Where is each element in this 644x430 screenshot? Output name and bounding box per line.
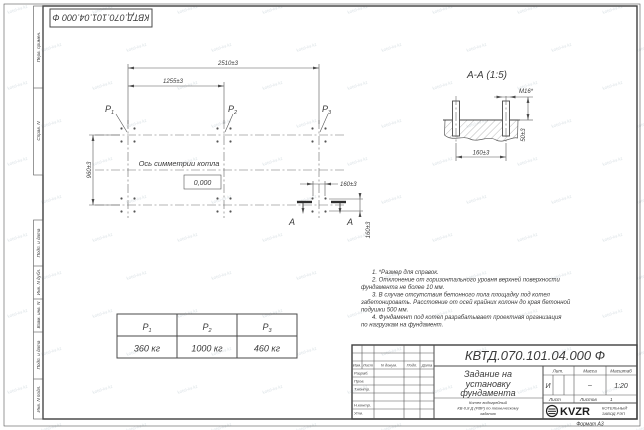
watermark-text: kotel-kv.kz (296, 41, 318, 52)
sheet-label: Лист (548, 397, 561, 402)
cut-letter-right: А (346, 217, 353, 227)
margin-label-podp-data-1: Подп. и дата (36, 228, 41, 257)
watermark-text: kotel-kv.kz (211, 41, 233, 52)
watermark-text: kotel-kv.kz (7, 155, 29, 166)
watermark-text: kotel-kv.kz (177, 231, 199, 242)
watermark-text: kotel-kv.kz (262, 231, 284, 242)
watermark-text: kotel-kv.kz (211, 117, 233, 128)
watermark-text: kotel-kv.kz (92, 383, 114, 394)
dim-bolt-y-text: 160±3 (366, 221, 372, 238)
watermark-text: kotel-kv.kz (262, 383, 284, 394)
watermark-text: kotel-kv.kz (381, 117, 403, 128)
note-line-2: 2. Отклонение от горизонтального уровня … (371, 277, 561, 284)
title-block-left-labels: Изм. Лист N докум. Подп. Дата Разраб. Пр… (353, 363, 433, 416)
note-line-5: забетонировать. Расстояние от осей крайн… (360, 299, 571, 306)
watermark-text: kotel-kv.kz (296, 345, 318, 356)
watermark-text: kotel-kv.kz (41, 193, 63, 204)
watermark-text: kotel-kv.kz (7, 79, 29, 90)
watermark-text: kotel-kv.kz (92, 231, 114, 242)
load-table-header-2: Р2 (202, 322, 211, 334)
watermark-text: kotel-kv.kz (41, 117, 63, 128)
note-line-7: 4. Фундамент под котел разрабатывает про… (372, 315, 562, 321)
watermark-text: kotel-kv.kz (211, 269, 233, 280)
cut-letter-left: А (288, 217, 295, 227)
company-name-line2: ЗАВОД РЭП (602, 411, 625, 416)
watermark-text: kotel-kv.kz (432, 79, 454, 90)
watermark-text: kotel-kv.kz (7, 383, 29, 394)
margin-label-perv-primen: Перв. примен. (36, 32, 41, 63)
note-line-6: подушки 500 мм. (361, 308, 408, 314)
svg-text:Задание на: Задание на (464, 369, 512, 379)
plan-centerlines (95, 120, 345, 218)
watermark-text: kotel-kv.kz (262, 79, 284, 90)
col-podp: Подп. (407, 363, 418, 368)
watermark-text: kotel-kv.kz (7, 307, 29, 318)
watermark-text: kotel-kv.kz (41, 41, 63, 52)
sheets-label: Листов (579, 397, 597, 402)
notes: 1. *Размер для справок. 2. Отклонение от… (360, 270, 571, 329)
watermark-text: kotel-kv.kz (602, 231, 624, 242)
svg-text:заданию: заданию (479, 411, 496, 416)
bolt-callout: М16* (494, 89, 534, 98)
section-title: А-А (1:5) (466, 70, 507, 81)
dim-depth-text: 960±3 (87, 161, 93, 178)
svg-text:КВ-0,8 Д (РВР) по техническому: КВ-0,8 Д (РВР) по техническому (457, 406, 519, 411)
watermark-text: kotel-kv.kz (296, 193, 318, 204)
dim-protrusion: 50±3 (518, 97, 533, 142)
top-stamp-doc-number: КВТД.070.101.04.000 Ф (52, 13, 149, 23)
watermark-text: kotel-kv.kz (551, 117, 573, 128)
margin-label-inv-dubl: Инв. N дубл. (36, 269, 41, 296)
watermark-text: kotel-kv.kz (602, 155, 624, 166)
title-block: Изм. Лист N докум. Подп. Дата Разраб. Пр… (352, 345, 637, 419)
watermark-text: kotel-kv.kz (41, 345, 63, 356)
watermark-text: kotel-kv.kz (211, 193, 233, 204)
watermark-text: kotel-kv.kz (381, 41, 403, 52)
lit-mass-scale: Лит. Масса Масштаб И – 1:20 Лист Листов … (545, 369, 632, 402)
watermark-text: kotel-kv.kz (466, 41, 488, 52)
sheets-value: 1 (610, 397, 613, 402)
format-label: Формат А3 (576, 422, 604, 428)
watermark-text: kotel-kv.kz (432, 231, 454, 242)
p1-label: Р1 (105, 104, 114, 116)
watermark-text: kotel-kv.kz (177, 383, 199, 394)
load-table-value-2: 1000 кг (191, 344, 223, 354)
watermark-text: kotel-kv.kz (92, 155, 114, 166)
dim-bolt-y: 160±3 (329, 193, 372, 238)
watermark-text: kotel-kv.kz (432, 3, 454, 14)
bolt-size-text: М16* (519, 89, 534, 95)
note-line-4: 3. В случае отсутствия бетонного пола пл… (372, 293, 550, 299)
margin-label-inv-podl: Инв. N подл. (36, 386, 41, 413)
load-table-value-3: 460 кг (254, 344, 281, 354)
dim-protrusion-text: 50±3 (521, 128, 527, 142)
watermark-text: kotel-kv.kz (92, 307, 114, 318)
margin-label-podp-data-2: Подп. и дата (36, 340, 41, 369)
scale-value: 1:20 (614, 383, 628, 390)
watermark-text: kotel-kv.kz (602, 307, 624, 318)
watermark-text: kotel-kv.kz (517, 383, 539, 394)
lit-value: И (545, 383, 551, 390)
load-table-value-1: 360 кг (134, 344, 161, 354)
watermark-text: kotel-kv.kz (41, 269, 63, 280)
load-table-header-3: Р3 (262, 322, 272, 334)
dim-half: 1255±3 (128, 79, 224, 124)
drawing-title: Задание на установку фундамента (460, 369, 515, 398)
watermark-text: kotel-kv.kz (347, 155, 369, 166)
watermark-text: kotel-kv.kz (7, 231, 29, 242)
section-cut-marks: А А (288, 202, 353, 227)
note-line-1: 1. *Размер для справок. (372, 270, 439, 276)
note-line-3: фундамента не более 10 мм. (361, 285, 444, 291)
mass-value: – (587, 383, 592, 390)
watermark-text: kotel-kv.kz (432, 155, 454, 166)
watermark-text: kotel-kv.kz (7, 3, 29, 14)
watermark-text: kotel-kv.kz (517, 3, 539, 14)
level-mark-value: 0,000 (194, 180, 212, 187)
watermark-text: kotel-kv.kz (381, 345, 403, 356)
margin-label-sprav-n: Справ. N (36, 121, 41, 141)
p3-label: Р3 (322, 104, 332, 116)
watermark-text: kotel-kv.kz (551, 41, 573, 52)
watermark-text: kotel-kv.kz (347, 79, 369, 90)
watermark-text: kotel-kv.kz (177, 307, 199, 318)
watermark-text: kotel-kv.kz (92, 79, 114, 90)
col-izm: Изм. (353, 363, 362, 368)
watermark-text: kotel-kv.kz (126, 193, 148, 204)
watermark-text: kotel-kv.kz (466, 193, 488, 204)
doc-number: КВТД.070.101.04.000 Ф (465, 348, 605, 363)
watermark-text: kotel-kv.kz (551, 193, 573, 204)
svg-text:фундамента: фундамента (460, 388, 515, 398)
drawing-sheet: kotel-kv.kzkotel-kv.kzkotel-kv.kzkotel-k… (0, 0, 644, 430)
watermark-text: kotel-kv.kz (126, 269, 148, 280)
dim-overall: 2510±3 (128, 61, 319, 124)
row-tkontr: Т.контр. (354, 387, 370, 392)
dim-section-width-text: 160±3 (473, 151, 490, 157)
dim-half-text: 1255±3 (163, 79, 184, 85)
mass-label: Масса (583, 369, 597, 374)
watermark-text: kotel-kv.kz (602, 79, 624, 90)
watermark-text: kotel-kv.kz (296, 117, 318, 128)
axis-symmetry-label: Ось симметрии котла (139, 159, 220, 168)
watermark-text: kotel-kv.kz (262, 307, 284, 318)
dim-bolt-x-text: 160±3 (340, 182, 357, 188)
watermark-text: kotel-kv.kz (262, 155, 284, 166)
logo-text: KVZR (560, 406, 590, 418)
dim-overall-text: 2510±3 (217, 61, 239, 67)
lit-label: Лит. (552, 369, 564, 374)
watermark-text: kotel-kv.kz (347, 3, 369, 14)
watermark-text: kotel-kv.kz (432, 383, 454, 394)
plan-view: 2510±3 1255±3 960±3 160±3 (87, 61, 372, 238)
row-razrab: Разраб. (354, 371, 368, 376)
scale-label: Масштаб (610, 369, 632, 374)
load-table-header-1: Р1 (142, 322, 151, 334)
dim-section-width: 160±3 (456, 143, 506, 161)
dim-bolt-x: 160±3 (300, 181, 357, 196)
company-logo: KVZR КОТЕЛЬНЫЙ ЗАВОД РЭП (547, 406, 628, 419)
note-line-8: по нагрузкам на фундамент. (361, 323, 443, 329)
row-utv: Утв. (354, 411, 363, 416)
col-n-dokum: N докум. (381, 363, 397, 368)
watermark-text: kotel-kv.kz (177, 3, 199, 14)
watermark-text: kotel-kv.kz (296, 269, 318, 280)
load-table: Р1 Р2 Р3 360 кг 1000 кг 460 кг (117, 314, 297, 358)
margin-label-vzam-inv: Взам. инв. N (36, 301, 41, 328)
svg-text:Котел водогрейный: Котел водогрейный (469, 400, 508, 405)
col-data: Дата (421, 363, 433, 368)
drawing-subtitle: Котел водогрейный КВ-0,8 Д (РВР) по техн… (457, 400, 519, 416)
p2-label: Р2 (228, 104, 237, 116)
watermark-text: kotel-kv.kz (262, 3, 284, 14)
company-name-line1: КОТЕЛЬНЫЙ (602, 406, 627, 411)
watermark-text: kotel-kv.kz (126, 117, 148, 128)
row-nkontr: Н.контр. (354, 403, 371, 408)
watermark-text: kotel-kv.kz (517, 155, 539, 166)
level-mark: 0,000 (184, 175, 221, 189)
watermark-text: kotel-kv.kz (381, 193, 403, 204)
section-view: А-А (1:5) М16* 50±3 (443, 70, 534, 161)
watermark-text: kotel-kv.kz (517, 231, 539, 242)
col-list: Лист (362, 363, 374, 368)
watermark-text: kotel-kv.kz (602, 3, 624, 14)
watermark-text: kotel-kv.kz (126, 41, 148, 52)
row-prov: Пров. (354, 379, 365, 384)
